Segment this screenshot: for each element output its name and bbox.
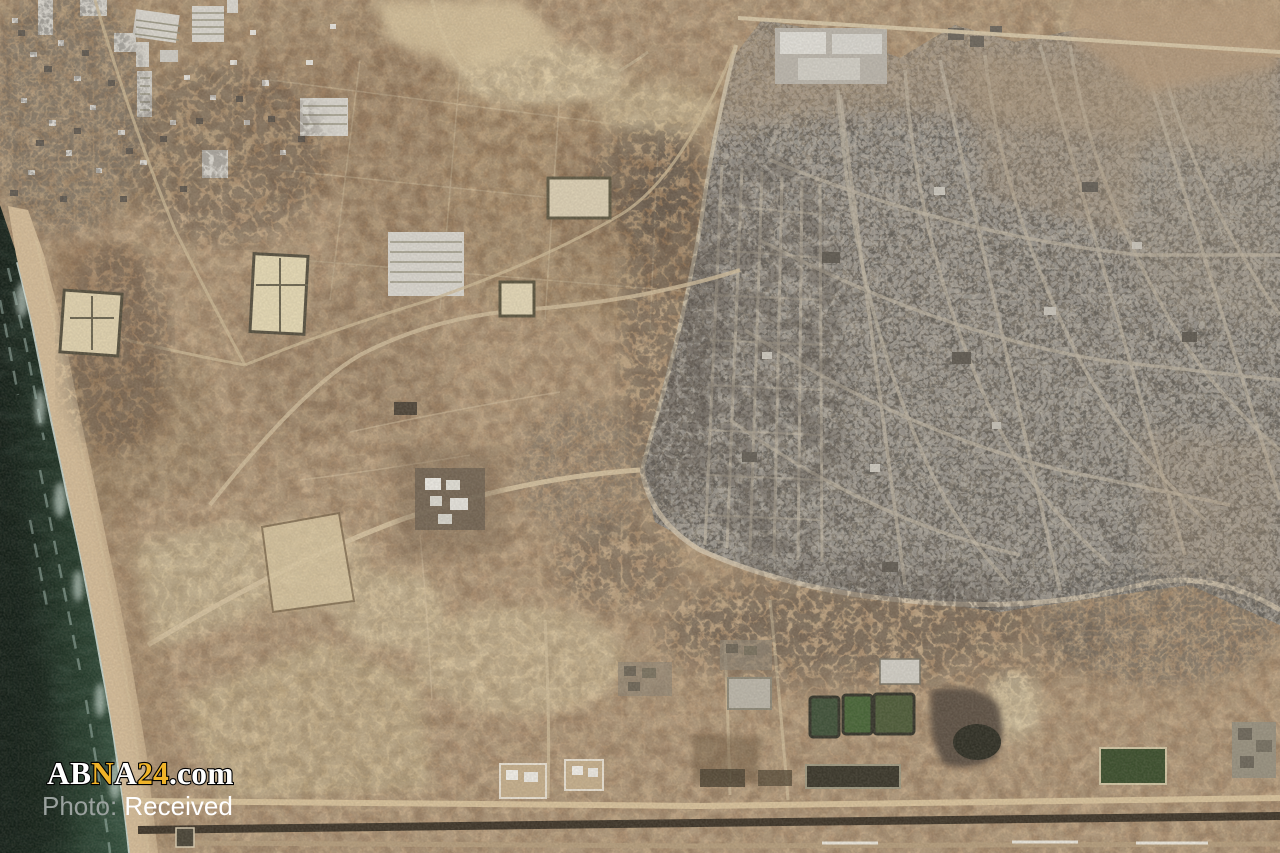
svg-text:ABNA24.com: ABNA24.com — [47, 756, 234, 791]
svg-text:Photo: Received: Photo: Received — [42, 791, 233, 821]
